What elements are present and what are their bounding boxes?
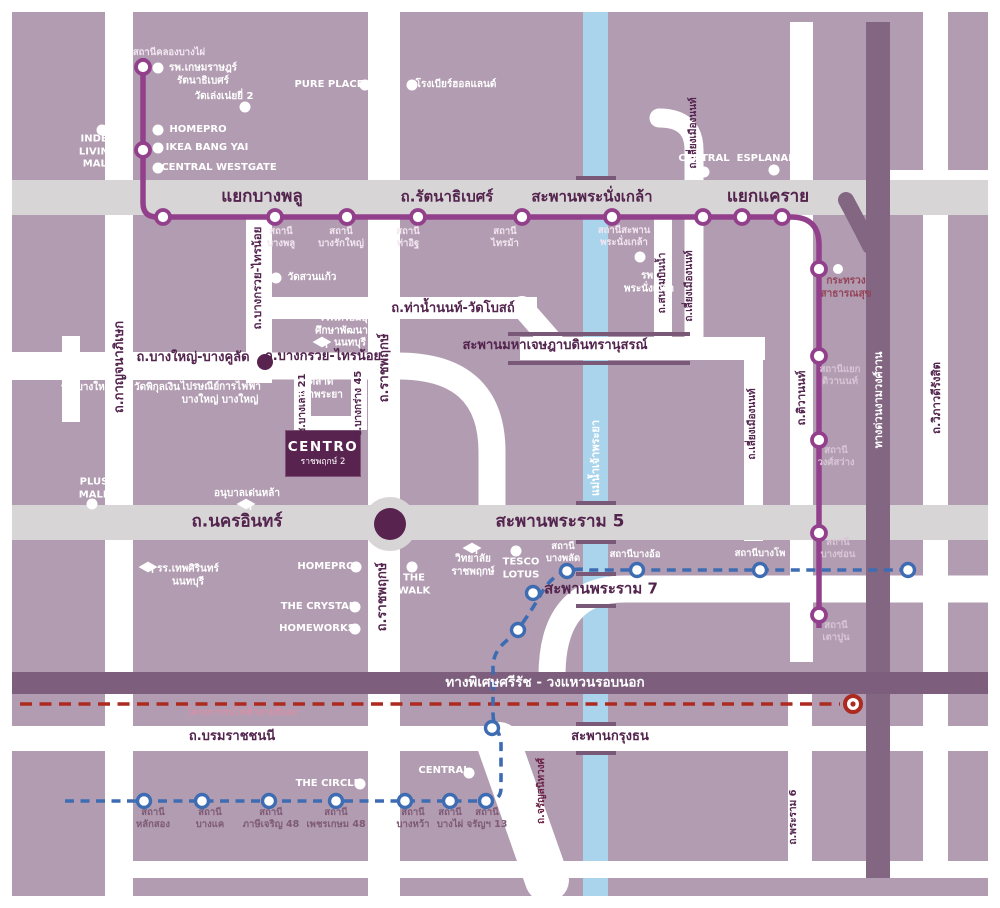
- station-bang-rak-yai: [340, 210, 354, 224]
- junction-bang-phlu: แยกบางพลู: [221, 186, 302, 207]
- station-bang-o-label: สถานีบางอ้อ: [610, 549, 661, 561]
- road-bang-kruai-sai-noi-vertical: ถ.บางกรวย-ไทรน้อย: [250, 227, 264, 330]
- road-nakhon-in: ถ.นครอินทร์: [191, 511, 282, 532]
- station-yaek-tiwanon: [812, 349, 826, 363]
- poi-ratchaphruek-college: วิทยาลัย ราชพฤกษ์: [451, 554, 494, 579]
- poi-tesco-lotus: TESCO LOTUS: [503, 557, 540, 582]
- road-tiwanon-shape: [790, 22, 813, 662]
- poi-the-circle: THE CIRCLE: [296, 778, 361, 791]
- road-bang-kruai-sai-noi-horizontal: ถ.บางกรวย-ไทรน้อย: [265, 349, 381, 365]
- poi-homepro-nakhon-in: HOMEPRO: [297, 561, 354, 574]
- poi-the-walk: THE WALK: [398, 573, 430, 598]
- poi-index-living-mall: INDEX LIVING MALL: [79, 133, 117, 171]
- station-bang-phlat-label: สถานี บางพลัด: [546, 541, 580, 565]
- station-ministry-public-health: [812, 262, 826, 276]
- poi-esplanade: ESPLANADE: [737, 153, 804, 166]
- road-liang-mueang-non-mid: ถ.เลี่ยงเมืองนนท์: [684, 250, 697, 321]
- poi-anuban-denla: อนุบาลเด่นหล้า: [214, 488, 280, 501]
- station-saphan-phra-nangklao: [605, 210, 619, 224]
- station-bang-phlat: [561, 565, 574, 578]
- bridge-krung-thon: สะพานกรุงธน: [571, 729, 649, 745]
- poi-debsirin-nonthaburi-school: รร.เทพศิรินทร์ นนทบุรี: [157, 564, 219, 589]
- poi-electricity-authority-bang-yai: การไฟฟ้า บางใหญ่: [219, 382, 261, 407]
- station-tha-it-label: สถานี ท่าอิฐ: [396, 226, 419, 250]
- soi-bang-krang-45: ซ.บางกร่าง 45: [353, 371, 366, 438]
- road-ratchaphruek-lower: ถ.ราชพฤกษ์: [375, 563, 391, 632]
- poi-central-khae-rai: CENTRAL: [678, 153, 729, 166]
- roundabout-center: [374, 508, 406, 540]
- road-vibhavadi-rangsit: ถ.วิภาวดีรังสิต: [929, 362, 943, 434]
- station-bang-phlu-label: สถานี บางพลู: [267, 226, 295, 250]
- station-khlong-bang-phai-label: สถานีคลองบางไผ่: [133, 47, 205, 59]
- road-charan-sanitwong: ถ.จรัญสนิทวงศ์: [536, 758, 549, 824]
- station-phetkasem-48-label: สถานี เพชรเกษม 48: [306, 807, 365, 831]
- road-kanchanaphisek: ถ.กาญจนาภิเษก: [112, 321, 128, 413]
- poi-phra-nangklao-hospital: รพ. พระนั่งเกล้า: [624, 271, 674, 296]
- poi-central-bottom: CENTRAL: [418, 765, 469, 778]
- poi-chao-phraya-market: ตลาด เจ้าพระยา: [299, 377, 343, 402]
- poi-wat-phikul-ngoen: วัดพิกุลเงิน: [134, 382, 180, 395]
- station-lak-song: [138, 795, 151, 808]
- centro-project-name: ราชพฤกษ์ 2: [301, 458, 346, 467]
- poi-wat-suan-kaew: วัดสวนแก้ว: [288, 272, 337, 285]
- bridge-phra-nangklao: สะพานพระนั่งเกล้า: [531, 188, 652, 207]
- poi-pure-place: PURE PLACE: [294, 79, 363, 92]
- poi-post-office-bang-yai: ไปรษณีย์ บางใหญ่: [181, 382, 219, 407]
- station-bang-wa-label: สถานี บางหว้า: [397, 807, 430, 831]
- station-bang-son-label: สถานี บางซ่อน: [821, 537, 856, 561]
- poi-ministry-of-public-health: กระทรวง สาธารณสุข: [820, 276, 871, 301]
- bridge-maha-chesadabodin: สะพานมหาเจษฎาบดินทรานุสรณ์: [462, 338, 647, 354]
- junction-khae-rai: แยกแคราย: [727, 186, 809, 207]
- station-phetkasem-48: [330, 795, 343, 808]
- poi-kasemrad-hospital: รพ.เกษมราษฎร์ รัตนาธิเบศร์: [169, 63, 237, 88]
- station-bang-rak-yai-label: สถานี บางรักใหญ่: [318, 226, 364, 250]
- station-bang-pho-label: สถานีบางโพ: [735, 548, 786, 560]
- poi-homeworks: HOMEWORKS: [279, 623, 355, 636]
- road-bang-yai-bang-khulat: ถ.บางใหญ่-บางคูลัด: [136, 350, 249, 366]
- red-line-project-label: โครงการรถไฟฟ้าสายสีแดง: [186, 707, 297, 719]
- poi-homepro-bang-yai: HOMEPRO: [169, 124, 226, 137]
- road-liang-mueang-non-lower: ถ.เลี่ยงเมืองนนท์: [747, 388, 760, 459]
- centro-brand-name: CENTRO: [288, 441, 359, 455]
- poi-triam-udom-nonthaburi-school: รร.เตรียมอุดม ศึกษาพัฒนาการ นนทบุรี: [315, 312, 385, 350]
- road-rama6: ถ.พระราม 6: [788, 789, 801, 844]
- station-tao-poon-label: สถานี เตาปูน: [822, 620, 849, 644]
- station-lak-song-label: สถานี หลักสอง: [136, 807, 170, 831]
- poi-ikea-bang-yai: IKEA BANG YAI: [166, 142, 249, 155]
- station-charan-13: [480, 795, 493, 808]
- station-wong-sawang-label: สถานี วงศ์สว่าง: [817, 445, 854, 469]
- station-sai-ma: [515, 210, 529, 224]
- station-bang-khae-label: สถานี บางแค: [196, 807, 224, 831]
- station-sai-ma-label: สถานี ไทรม้า: [491, 226, 519, 250]
- station-saphan-phra-nangklao-label: สถานีสะพาน พระนั่งเกล้า: [598, 225, 650, 249]
- expressway-si-rat-label: ทางพิเศษศรีรัช - วงแหวนรอบนอก: [445, 675, 644, 692]
- station-bang-phlu: [268, 210, 282, 224]
- road-rattanathibet: ถ.รัตนาธิเบศร์: [401, 188, 494, 207]
- poi-plus-mall: PLUS MALL: [79, 477, 109, 502]
- station-bang-o: [631, 564, 644, 577]
- road-borommaratchachonnani: ถ.บรมราชชนนี: [189, 729, 275, 745]
- road-ratchaphruek-shape: [368, 12, 400, 896]
- station-bang-wa: [399, 795, 412, 808]
- station-bang-pho: [754, 564, 767, 577]
- location-map: CENTRO ราชพฤกษ์ 2 แยกบางพลูถ.รัตนาธิเบศร…: [0, 0, 1000, 908]
- poi-holland-beer-house: โรงเบียร์ฮอลแลนด์: [416, 79, 497, 92]
- station-talad-bang-yai: [136, 143, 150, 157]
- road-tha-nam-non: ถ.ท่าน้ำนนท์-วัดโบสถ์: [391, 301, 514, 317]
- poi-central-westgate: CENTRAL WESTGATE: [161, 162, 276, 175]
- station-tha-it: [411, 210, 425, 224]
- expressway-ngam-wong-wan-label: ทางด่วนงามวงศ์วาน: [872, 352, 886, 449]
- ngam-wong-wan-expressway-band: [866, 22, 890, 878]
- station-charan-13-label: สถานี จรัญฯ 13: [467, 807, 508, 831]
- river-chao-phraya-label: แม่น้ำเจ้าพระยา: [589, 420, 603, 496]
- station-khlong-bang-phai: [136, 60, 150, 74]
- poi-wat-leng-noei-yi-2: วัดเล่งเน่ยยี่ 2: [195, 91, 254, 104]
- station-phasi-charoen: [263, 795, 276, 808]
- station-bang-phai: [444, 795, 457, 808]
- station-bang-phai-label: สถานี บางไผ่: [437, 807, 463, 831]
- station-phasi-charoen-48-label: สถานี ภาษีเจริญ 48: [243, 807, 299, 831]
- bridge-rama7: สะพานพระราม 7: [544, 580, 658, 599]
- centro-project-logo: CENTRO ราชพฤกษ์ 2: [285, 430, 361, 477]
- road-tiwanon: ถ.ติวานนท์: [794, 370, 808, 425]
- station-yaek-tiwanon-label: สถานีแยก ติวานนท์: [820, 364, 861, 388]
- poi-the-crystal: THE CRYSTAL: [281, 601, 356, 614]
- poi-bang-yai-hospital: รพ.บางใหญ่: [61, 382, 114, 395]
- station-bang-khae: [196, 795, 209, 808]
- bridge-rama5: สะพานพระราม 5: [496, 511, 625, 532]
